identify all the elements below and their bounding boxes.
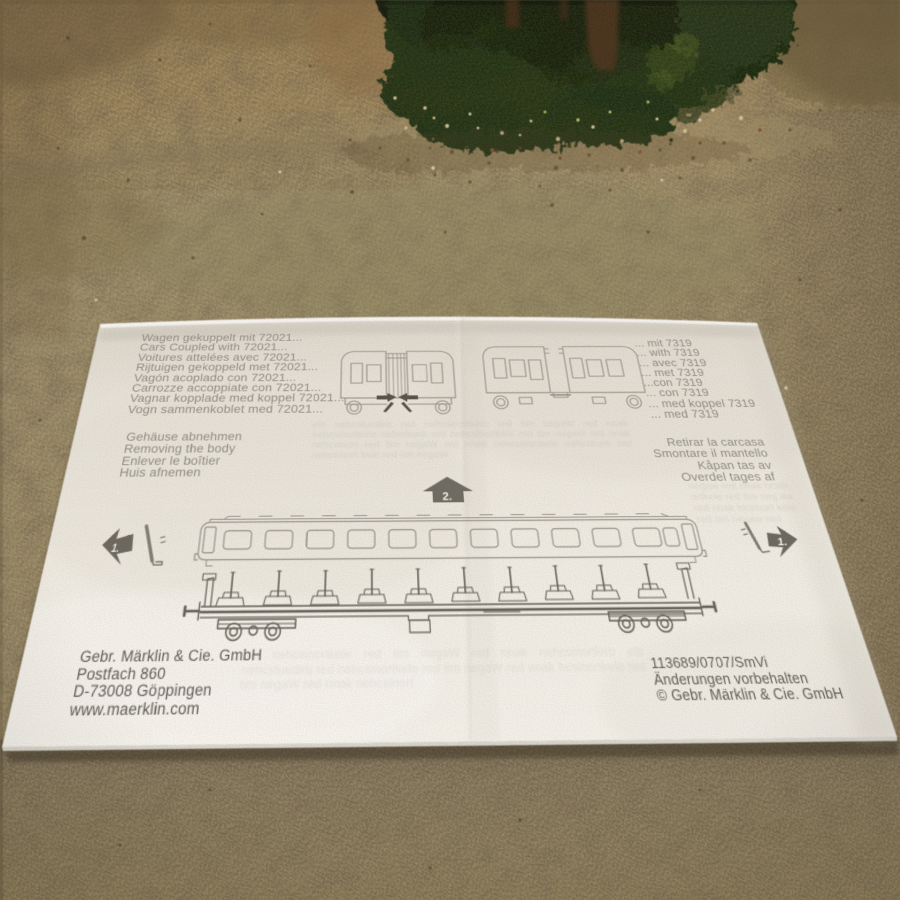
svg-text:2.: 2. [442,490,452,503]
